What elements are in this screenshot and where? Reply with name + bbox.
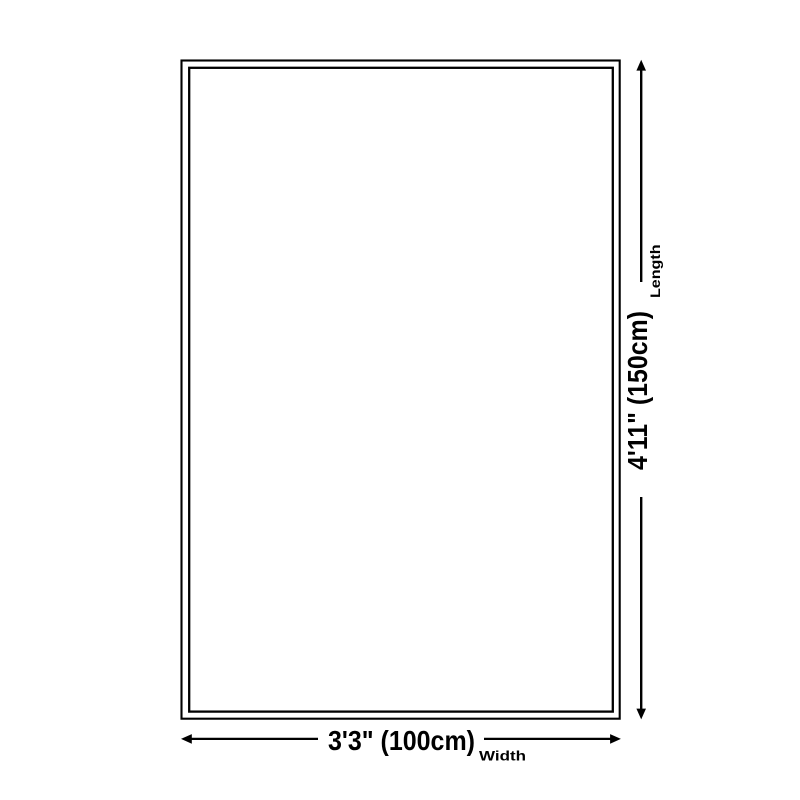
svg-text:Length: Length: [647, 245, 663, 299]
svg-text:4'11" (150cm): 4'11" (150cm): [622, 311, 653, 470]
svg-text:3'3" (100cm): 3'3" (100cm): [328, 725, 475, 756]
svg-text:Width: Width: [479, 747, 526, 763]
